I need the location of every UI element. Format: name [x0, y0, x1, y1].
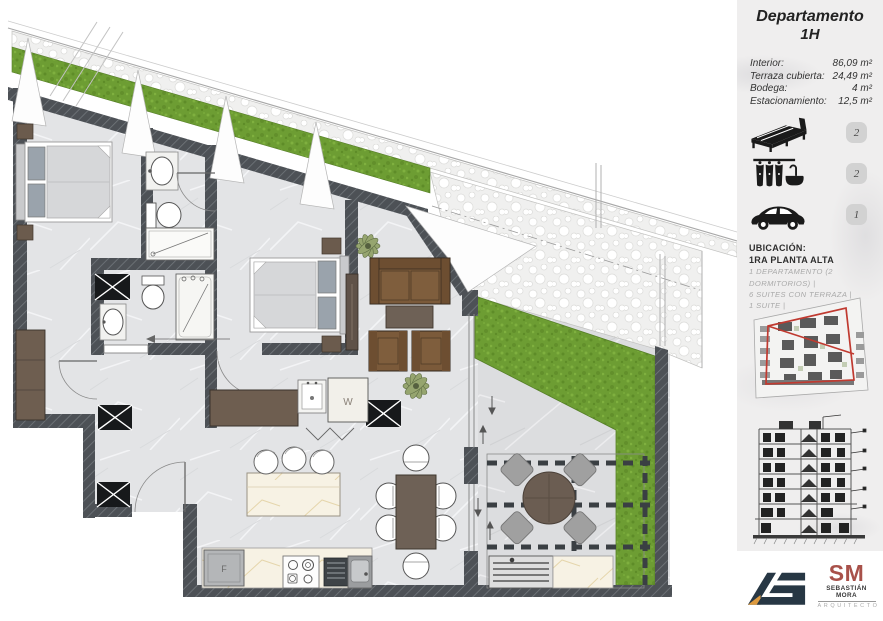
- unit-title: Departamento 1H: [737, 8, 883, 44]
- bedroom1-wardrobe: [16, 330, 45, 420]
- feature-row-bathrooms: 2: [747, 153, 873, 194]
- sm-logo: SM SEBASTIÁN MORA ARQUITECTO: [818, 563, 876, 610]
- info-row: Bodega:4 m²: [750, 83, 872, 96]
- feature-row-bedrooms: 2: [747, 112, 873, 153]
- bathroom-count-badge: 2: [846, 163, 867, 184]
- bed-icon: [747, 114, 809, 152]
- laundry-sink: [298, 380, 326, 413]
- feature-row-parking: 1: [747, 194, 873, 235]
- coffee-table: [386, 306, 433, 328]
- living-sofa: [370, 258, 450, 304]
- unit-title-line1: Departamento: [737, 8, 883, 26]
- svg-text:W: W: [343, 397, 353, 408]
- logos-band: SM SEBASTIÁN MORA ARQUITECTO: [737, 551, 883, 621]
- bath-icon: [747, 155, 809, 193]
- area-info: Interior:86,09 m² Terraza cubierta:24,49…: [750, 58, 872, 108]
- info-panel: Departamento 1H Interior:86,09 m² Terraz…: [737, 0, 883, 621]
- info-row: Estacionamiento:12,5 m²: [750, 96, 872, 109]
- kitchen-sink: [348, 556, 372, 588]
- kitchen-counter: F: [202, 548, 372, 588]
- dishwasher: [324, 558, 348, 586]
- unit-title-line2: 1H: [737, 26, 883, 43]
- building-elevation: [751, 413, 869, 549]
- info-row: Terraza cubierta:24,49 m²: [750, 71, 872, 84]
- car-icon: [747, 196, 809, 234]
- ubicacion-heading: UBICACIÓN:: [749, 242, 877, 254]
- sm-logo-initials: SM: [818, 563, 876, 584]
- floor-plan: W F: [0, 0, 737, 621]
- parking-count-badge: 1: [846, 204, 867, 225]
- sm-logo-name: SEBASTIÁN MORA: [818, 585, 876, 602]
- bedroom-count-badge: 2: [846, 122, 867, 143]
- svg-text:F: F: [221, 564, 227, 574]
- ag-logo-icon: [745, 564, 809, 608]
- ubicacion-item: 1 DEPARTAMENTO (2 DORMITORIOS) |: [749, 266, 877, 289]
- washing-machine: W: [328, 378, 368, 422]
- kitchen-island: [247, 447, 340, 516]
- laundry-counter: [210, 390, 298, 426]
- sm-logo-role: ARQUITECTO: [818, 603, 876, 609]
- stove: [283, 556, 319, 588]
- bbq-counter: [489, 556, 613, 588]
- ubicacion-subheading: 1RA PLANTA ALTA: [749, 254, 877, 266]
- floorplan-sheet: W F: [0, 0, 883, 621]
- feature-list: 2: [747, 112, 873, 235]
- info-row: Interior:86,09 m²: [750, 58, 872, 71]
- location-miniplan: [748, 292, 872, 412]
